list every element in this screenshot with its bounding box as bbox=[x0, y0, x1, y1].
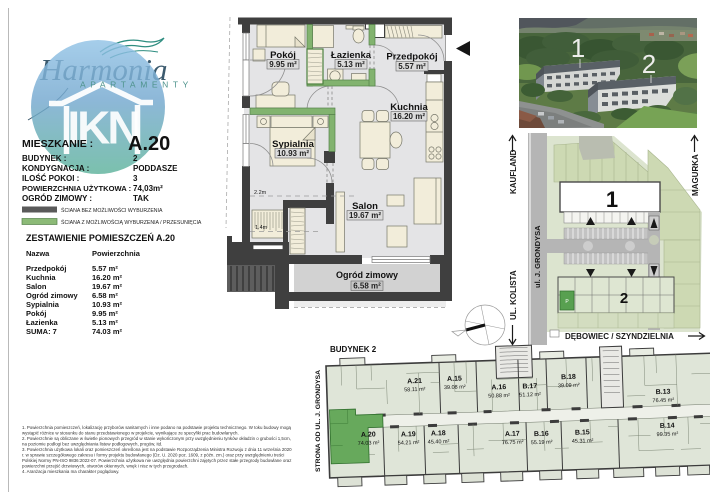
svg-text:2. Powierzchnie są obliczane w: 2. Powierzchnie są obliczane w świetle p… bbox=[22, 436, 291, 441]
svg-text:Przedpokój: Przedpokój bbox=[386, 52, 437, 63]
svg-text:B.15: B.15 bbox=[575, 429, 590, 436]
svg-text:45.40 m²: 45.40 m² bbox=[428, 439, 450, 446]
svg-text:BUDYNEK 2: BUDYNEK 2 bbox=[330, 345, 377, 354]
svg-text:B.13: B.13 bbox=[656, 389, 671, 396]
svg-text:74.03 m²: 74.03 m² bbox=[92, 327, 123, 336]
svg-text:powierzchni przejść drzwiowych: powierzchni przejść drzwiowych, otworów … bbox=[22, 464, 188, 469]
svg-text:BUDYNEK :: BUDYNEK : bbox=[22, 154, 66, 163]
svg-text:OGRÓD ZIMOWY :: OGRÓD ZIMOWY : bbox=[22, 194, 92, 203]
svg-text:2: 2 bbox=[642, 49, 656, 79]
svg-text:UL. KOLISTA: UL. KOLISTA bbox=[509, 270, 518, 320]
svg-text:74,03m²: 74,03m² bbox=[133, 184, 163, 193]
svg-text:POWIERZCHNIA UŻYTKOWA :: POWIERZCHNIA UŻYTKOWA : bbox=[22, 184, 131, 193]
svg-text:Ogród zimowy: Ogród zimowy bbox=[336, 270, 398, 280]
svg-text:Salon: Salon bbox=[26, 282, 47, 291]
svg-text:KAUFLAND: KAUFLAND bbox=[509, 149, 518, 194]
svg-text:A.18: A.18 bbox=[431, 430, 446, 437]
svg-text:DĘBOWIEC / SZYNDZIELNIA: DĘBOWIEC / SZYNDZIELNIA bbox=[565, 332, 674, 341]
svg-text:A.20: A.20 bbox=[128, 133, 170, 155]
svg-text:r. w sprawie szczegółowego zak: r. w sprawie szczegółowego zakresu i for… bbox=[22, 453, 284, 458]
svg-text:1. Powierzchnia pomieszczeń, l: 1. Powierzchnia pomieszczeń, lokalizację… bbox=[22, 425, 292, 430]
svg-text:A.19: A.19 bbox=[401, 431, 416, 438]
svg-text:6.58 m²: 6.58 m² bbox=[353, 282, 381, 291]
svg-text:19.67 m²: 19.67 m² bbox=[92, 282, 123, 291]
svg-text:Łazienka: Łazienka bbox=[26, 318, 59, 327]
svg-text:Powierzchnia: Powierzchnia bbox=[92, 249, 141, 258]
svg-text:1.4m: 1.4m bbox=[255, 225, 268, 231]
svg-text:76.75 m²: 76.75 m² bbox=[502, 439, 524, 446]
svg-text:Sypialnia: Sypialnia bbox=[26, 300, 60, 309]
svg-text:74.03 m²: 74.03 m² bbox=[358, 440, 380, 447]
svg-text:B.18: B.18 bbox=[561, 374, 576, 381]
svg-text:45.31 m²: 45.31 m² bbox=[572, 438, 594, 445]
svg-text:A.15: A.15 bbox=[447, 375, 462, 382]
svg-text:KONDYGNACJA :: KONDYGNACJA : bbox=[22, 164, 89, 173]
svg-text:39.09 m²: 39.09 m² bbox=[558, 383, 580, 390]
svg-text:39.08 m²: 39.08 m² bbox=[444, 384, 466, 391]
svg-text:MAGURKA: MAGURKA bbox=[691, 154, 700, 196]
svg-text:3. Powierzchnia użytkowa lokal: 3. Powierzchnia użytkowa lokali oraz pom… bbox=[22, 447, 292, 452]
svg-text:STRONA OD UL. J. GRONDYSA: STRONA OD UL. J. GRONDYSA bbox=[315, 370, 322, 472]
svg-text:5.13 m²: 5.13 m² bbox=[92, 318, 118, 327]
svg-text:2: 2 bbox=[133, 154, 138, 163]
svg-text:3: 3 bbox=[133, 174, 138, 183]
svg-text:SUMA: 7: SUMA: 7 bbox=[26, 327, 57, 336]
svg-text:ul. J. GRONDYSA: ul. J. GRONDYSA bbox=[533, 225, 542, 288]
svg-text:B.17: B.17 bbox=[522, 383, 537, 390]
svg-text:55.19 m²: 55.19 m² bbox=[531, 440, 553, 447]
svg-text:5.57 m²: 5.57 m² bbox=[398, 62, 426, 71]
svg-text:Przedpokój: Przedpokój bbox=[26, 264, 66, 273]
svg-text:ŚCIANA Z MOŻLIWOŚCIĄ WYBURZENI: ŚCIANA Z MOŻLIWOŚCIĄ WYBURZENIA / PRZESU… bbox=[61, 218, 202, 226]
svg-text:58.11 m²: 58.11 m² bbox=[404, 387, 426, 394]
svg-text:99.35 m²: 99.35 m² bbox=[657, 431, 679, 438]
svg-text:76.45 m²: 76.45 m² bbox=[652, 397, 674, 404]
svg-text:16.20 m²: 16.20 m² bbox=[393, 112, 425, 121]
svg-text:wystąpić różnice w stosunku do: wystąpić różnice w stosunku do stanu prz… bbox=[22, 431, 239, 436]
svg-text:PODDASZE: PODDASZE bbox=[133, 164, 178, 173]
svg-text:51.12 m²: 51.12 m² bbox=[519, 392, 541, 399]
svg-text:APARTAMENTY: APARTAMENTY bbox=[80, 80, 193, 90]
svg-text:TAK: TAK bbox=[133, 194, 149, 203]
svg-text:16.20 m²: 16.20 m² bbox=[92, 273, 123, 282]
svg-text:9.95 m²: 9.95 m² bbox=[269, 60, 297, 69]
svg-text:1: 1 bbox=[571, 33, 585, 63]
svg-text:Nazwa: Nazwa bbox=[26, 249, 50, 258]
svg-text:Ogród zimowy: Ogród zimowy bbox=[26, 291, 78, 300]
svg-text:5.13 m²: 5.13 m² bbox=[337, 60, 365, 69]
svg-text:B.16: B.16 bbox=[534, 431, 549, 438]
svg-text:A.16: A.16 bbox=[491, 384, 506, 391]
svg-text:19.67 m²: 19.67 m² bbox=[349, 211, 381, 220]
svg-text:6.58 m²: 6.58 m² bbox=[92, 291, 118, 300]
svg-text:10.93 m²: 10.93 m² bbox=[92, 300, 123, 309]
svg-text:Pokój: Pokój bbox=[26, 309, 46, 318]
svg-text:A.21: A.21 bbox=[407, 378, 422, 385]
svg-text:Polskiej Normy PN-ISO 9836:202: Polskiej Normy PN-ISO 9836:2022-07. Powi… bbox=[22, 458, 291, 463]
svg-text:10.93 m²: 10.93 m² bbox=[277, 149, 309, 158]
svg-text:4. Aranżacja mieszkania ma cha: 4. Aranżacja mieszkania ma charakter pog… bbox=[22, 469, 119, 474]
svg-text:1: 1 bbox=[606, 187, 618, 212]
svg-text:50.88 m²: 50.88 m² bbox=[488, 393, 510, 400]
svg-text:ZESTAWIENIE POMIESZCZEŃ A.20: ZESTAWIENIE POMIESZCZEŃ A.20 bbox=[26, 233, 175, 243]
svg-text:Kuchnia: Kuchnia bbox=[26, 273, 56, 282]
svg-text:2.2m: 2.2m bbox=[254, 190, 267, 196]
svg-text:ILOŚĆ POKOI :: ILOŚĆ POKOI : bbox=[22, 174, 79, 183]
svg-text:A.20: A.20 bbox=[361, 431, 376, 438]
svg-text:5.57 m²: 5.57 m² bbox=[92, 264, 118, 273]
svg-text:A.17: A.17 bbox=[505, 431, 520, 438]
svg-text:9.95 m²: 9.95 m² bbox=[92, 309, 118, 318]
svg-text:2: 2 bbox=[620, 290, 628, 307]
svg-text:B.14: B.14 bbox=[660, 422, 675, 429]
svg-text:ŚCIANA BEZ MOŻLIWOŚCI WYBURZEN: ŚCIANA BEZ MOŻLIWOŚCI WYBURZENIA bbox=[61, 206, 163, 214]
svg-text:na poziomie podłogi bez uwzglę: na poziomie podłogi bez uwzględniania li… bbox=[22, 442, 162, 447]
svg-text:54.21 m²: 54.21 m² bbox=[398, 440, 420, 447]
svg-text:MIESZKANIE :: MIESZKANIE : bbox=[22, 138, 93, 150]
